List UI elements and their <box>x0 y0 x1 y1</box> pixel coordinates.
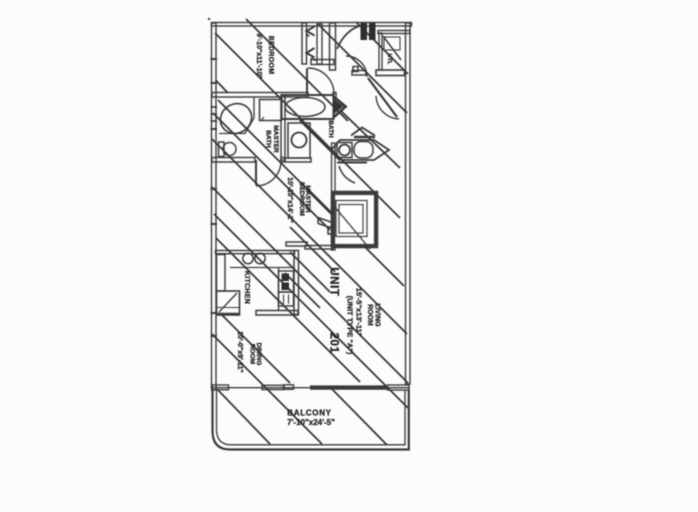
svg-text:10'-10"x14'-2": 10'-10"x14'-2" <box>286 177 293 223</box>
svg-text:9'-10"x11'-10": 9'-10"x11'-10" <box>255 33 262 78</box>
svg-text:MASTER: MASTER <box>272 125 279 153</box>
svg-text:BEDROOM: BEDROOM <box>267 36 274 75</box>
svg-text:15'-5"x13'-11": 15'-5"x13'-11" <box>355 288 364 337</box>
svg-text:LIVING: LIVING <box>374 303 381 327</box>
svg-text:(UNIT TYPE "A"): (UNIT TYPE "A") <box>346 296 355 355</box>
svg-text:UNIT: UNIT <box>328 267 340 296</box>
svg-text:BALCONY: BALCONY <box>287 409 331 418</box>
svg-text:BATH: BATH <box>327 120 334 138</box>
svg-text:ROOM: ROOM <box>249 344 256 364</box>
svg-text:201: 201 <box>328 333 340 354</box>
svg-text:BEDROOM: BEDROOM <box>298 182 305 216</box>
svg-text:KITCHEN: KITCHEN <box>243 271 250 304</box>
svg-text:10'-0"x9'-11": 10'-0"x9'-11" <box>236 331 243 373</box>
svg-text:7'-10"x24'-5": 7'-10"x24'-5" <box>287 418 335 427</box>
svg-text:BATH: BATH <box>265 130 272 148</box>
svg-text:ROOM: ROOM <box>366 304 373 326</box>
svg-text:UTL: UTL <box>386 54 392 65</box>
